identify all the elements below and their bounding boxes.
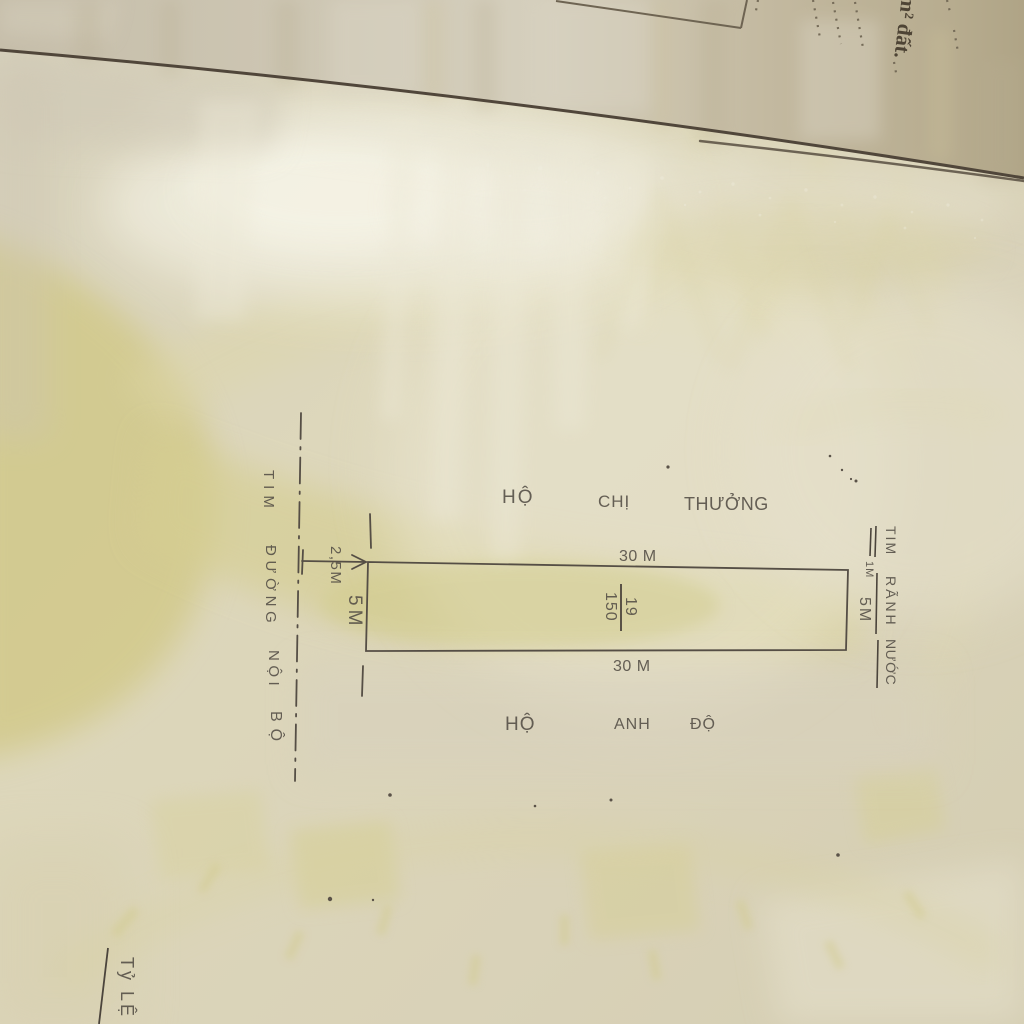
svg-text:ANH: ANH <box>614 716 651 733</box>
svg-text:BỘ: BỘ <box>267 711 286 748</box>
svg-text:5M: 5M <box>344 595 365 629</box>
svg-text:TIM: TIM <box>260 470 277 514</box>
svg-text:1M: 1M <box>863 561 875 578</box>
svg-text:19: 19 <box>622 597 639 617</box>
svg-text:Tỷ LỆ: Tỷ LỆ <box>117 957 137 1019</box>
svg-text:HỘ: HỘ <box>502 486 535 508</box>
svg-text:HỘ: HỘ <box>505 713 536 735</box>
svg-text:TIM: TIM <box>883 526 899 556</box>
svg-text:2,5M: 2,5M <box>327 546 344 585</box>
svg-text:5M: 5M <box>856 597 873 623</box>
svg-text:150: 150 <box>602 592 619 622</box>
svg-text:30 M: 30 M <box>619 548 657 565</box>
svg-text:ĐỘ: ĐỘ <box>690 714 716 733</box>
svg-text:NƯỚC: NƯỚC <box>883 639 899 685</box>
svg-text:ĐƯỜNG: ĐƯỜNG <box>262 545 279 628</box>
svg-text:NỘI: NỘI <box>265 650 282 690</box>
svg-text:THƯỞNG: THƯỞNG <box>684 493 769 514</box>
svg-text:30 M: 30 M <box>613 658 651 675</box>
svg-text:RÃNH: RÃNH <box>883 576 899 628</box>
svg-text:CHỊ: CHỊ <box>598 492 630 511</box>
